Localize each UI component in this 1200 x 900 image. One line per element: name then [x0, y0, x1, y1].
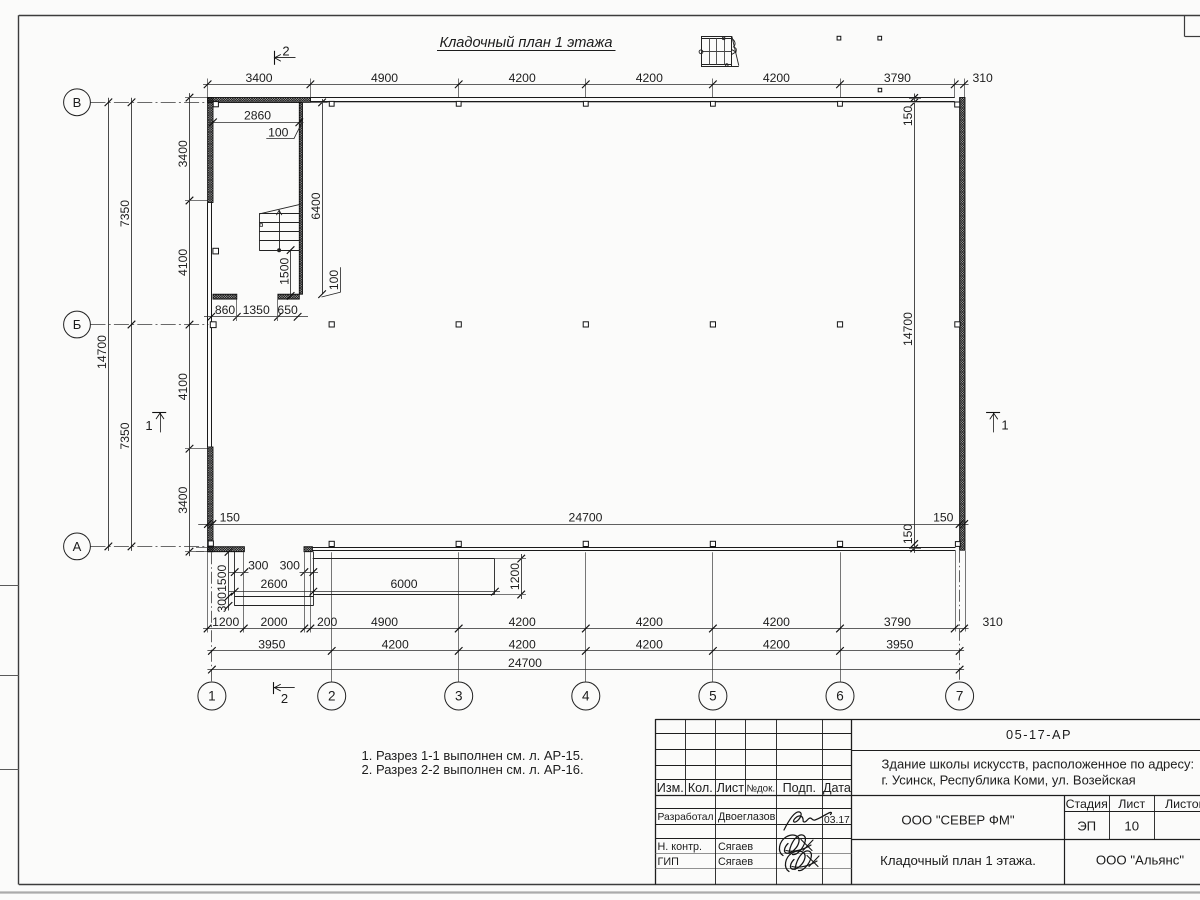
svg-text:1: 1 [145, 418, 152, 433]
svg-text:3950: 3950 [258, 637, 285, 651]
svg-text:В: В [73, 95, 82, 110]
svg-text:6000: 6000 [390, 577, 417, 591]
svg-text:1: 1 [1001, 418, 1008, 433]
svg-text:4200: 4200 [636, 71, 663, 85]
svg-text:1200: 1200 [508, 563, 522, 590]
svg-text:Здание школы искусств, располо: Здание школы искусств, расположенное по … [882, 756, 1195, 771]
svg-text:4200: 4200 [509, 615, 536, 629]
svg-text:300: 300 [248, 558, 269, 572]
svg-text:г. Усинск, Республика Коми, ул: г. Усинск, Республика Коми, ул. Возейска… [882, 772, 1136, 787]
svg-text:1. Разрез 1-1 выполнен см. л.: 1. Разрез 1-1 выполнен см. л. АР-15. [362, 748, 584, 763]
svg-text:Н. контр.: Н. контр. [658, 841, 703, 853]
svg-text:3950: 3950 [886, 637, 913, 651]
svg-text:650: 650 [277, 303, 298, 317]
svg-text:2. Разрез 2-2 выполнен см. л.: 2. Разрез 2-2 выполнен см. л. АР-16. [362, 762, 584, 777]
svg-text:4900: 4900 [371, 71, 398, 85]
svg-text:150: 150 [901, 106, 915, 127]
svg-text:Дата: Дата [823, 781, 851, 795]
svg-text:10: 10 [1124, 819, 1139, 834]
svg-text:Кол.: Кол. [688, 781, 713, 795]
svg-text:2860: 2860 [244, 109, 271, 123]
svg-text:2: 2 [282, 44, 289, 59]
svg-text:1500: 1500 [277, 258, 291, 285]
svg-text:ЭП: ЭП [1077, 819, 1096, 834]
svg-text:ГИП: ГИП [658, 856, 679, 868]
svg-text:6: 6 [836, 689, 844, 704]
svg-text:150: 150 [220, 510, 241, 524]
svg-text:7350: 7350 [118, 422, 132, 449]
svg-text:300: 300 [280, 558, 301, 572]
svg-text:200: 200 [317, 615, 338, 629]
svg-text:1350: 1350 [243, 303, 270, 317]
svg-text:100: 100 [268, 126, 289, 140]
svg-text:Кладочный план 1 этажа.: Кладочный план 1 этажа. [880, 853, 1036, 868]
svg-text:2: 2 [328, 689, 336, 704]
svg-text:4200: 4200 [763, 615, 790, 629]
svg-text:4200: 4200 [636, 615, 663, 629]
svg-text:14700: 14700 [95, 335, 109, 369]
svg-text:7: 7 [956, 689, 964, 704]
svg-text:4200: 4200 [382, 637, 409, 651]
svg-text:860: 860 [215, 303, 236, 317]
svg-text:5: 5 [709, 689, 717, 704]
svg-text:4200: 4200 [509, 71, 536, 85]
svg-text:Подп.: Подп. [783, 781, 816, 795]
svg-text:100: 100 [327, 270, 341, 291]
svg-text:А: А [73, 539, 82, 554]
svg-text:ООО "СЕВЕР ФМ": ООО "СЕВЕР ФМ" [901, 812, 1015, 827]
svg-text:3790: 3790 [884, 71, 911, 85]
svg-text:150: 150 [933, 510, 954, 524]
svg-text:310: 310 [983, 615, 1004, 629]
svg-text:Двоеглазов: Двоеглазов [718, 811, 776, 823]
svg-text:3: 3 [455, 689, 463, 704]
svg-text:Стадия: Стадия [1066, 797, 1108, 811]
svg-text:Кладочный план 1 этажа: Кладочный план 1 этажа [439, 35, 612, 51]
svg-text:03.17: 03.17 [824, 815, 850, 826]
svg-text:Сягаев: Сягаев [718, 856, 753, 868]
svg-text:310: 310 [973, 71, 994, 85]
svg-text:3400: 3400 [176, 140, 190, 167]
svg-text:300: 300 [215, 592, 229, 613]
svg-text:Разработал: Разработал [658, 811, 714, 823]
svg-text:Листов: Листов [1165, 797, 1200, 811]
svg-text:Лист: Лист [717, 781, 745, 795]
svg-text:4900: 4900 [371, 615, 398, 629]
svg-text:6400: 6400 [309, 192, 323, 219]
svg-text:ООО "Альянс": ООО "Альянс" [1096, 852, 1184, 867]
svg-text:Лист: Лист [1118, 797, 1145, 811]
svg-text:3400: 3400 [176, 486, 190, 513]
svg-text:Б: Б [73, 317, 82, 332]
svg-text:2: 2 [281, 691, 288, 706]
svg-text:1: 1 [208, 689, 216, 704]
svg-text:Сягаев: Сягаев [718, 841, 753, 853]
svg-text:150: 150 [901, 524, 915, 545]
svg-text:Изм.: Изм. [657, 781, 684, 795]
svg-text:1500: 1500 [215, 565, 229, 592]
svg-text:4: 4 [582, 689, 590, 704]
svg-text:4200: 4200 [763, 637, 790, 651]
svg-text:4100: 4100 [176, 373, 190, 400]
svg-text:4100: 4100 [176, 249, 190, 276]
svg-text:24700: 24700 [508, 656, 542, 670]
svg-text:2000: 2000 [260, 615, 287, 629]
svg-text:4200: 4200 [636, 637, 663, 651]
svg-text:№док.: №док. [746, 784, 775, 795]
svg-text:14700: 14700 [901, 312, 915, 346]
svg-text:4200: 4200 [509, 637, 536, 651]
svg-text:24700: 24700 [569, 510, 603, 524]
svg-text:3790: 3790 [884, 615, 911, 629]
svg-text:3400: 3400 [245, 71, 272, 85]
svg-text:05-17-АР: 05-17-АР [1006, 727, 1072, 742]
svg-text:2600: 2600 [260, 577, 287, 591]
svg-text:7350: 7350 [118, 200, 132, 227]
svg-text:1200: 1200 [212, 615, 239, 629]
svg-text:4200: 4200 [763, 71, 790, 85]
